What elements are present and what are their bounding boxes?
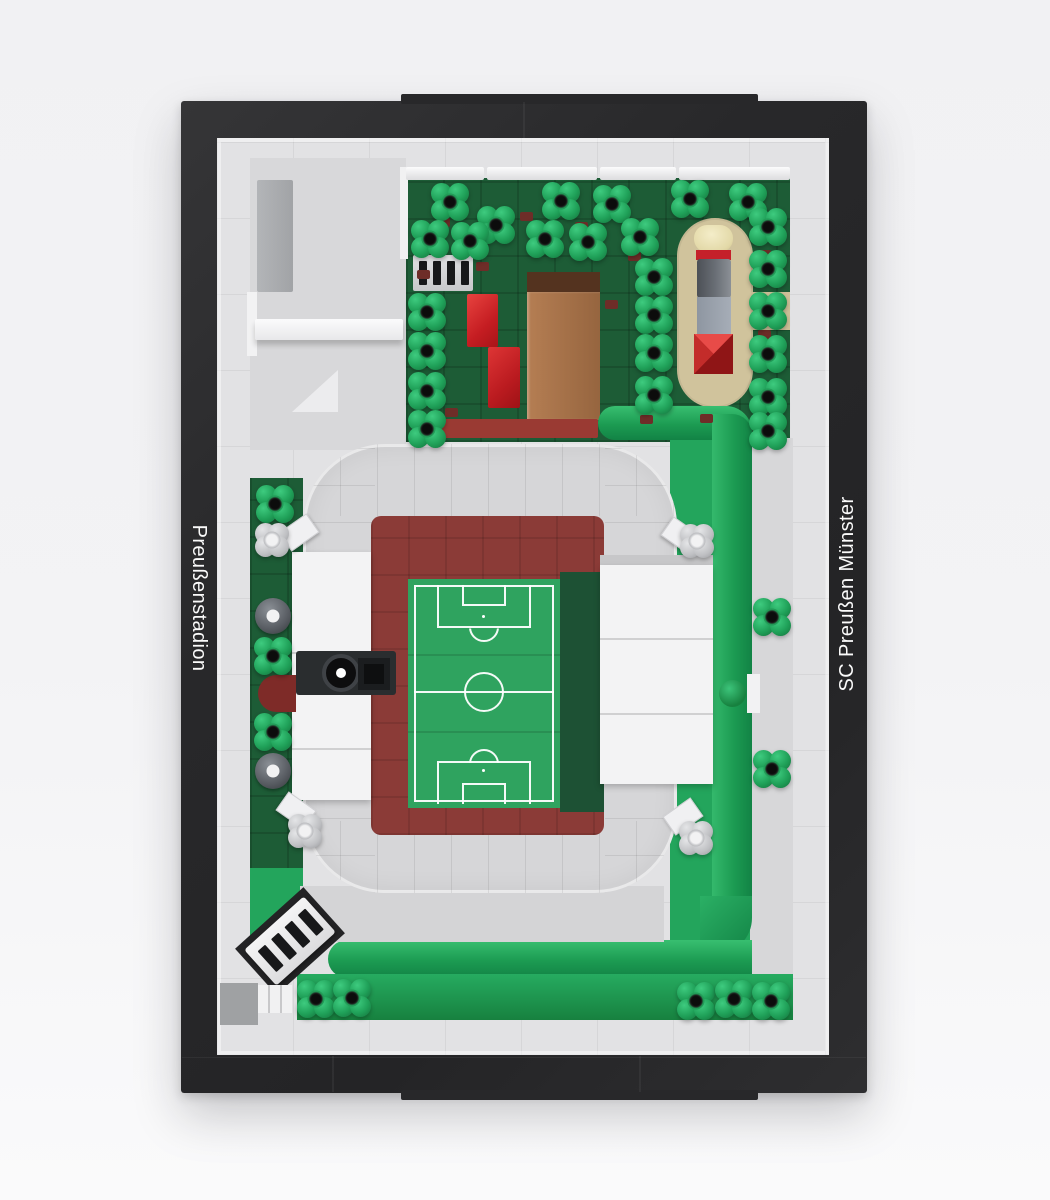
- floodlight-flower: [679, 821, 713, 855]
- frame-label-left: Preußenstadion: [187, 478, 211, 718]
- flower-brick: [635, 334, 673, 372]
- flower-brick: [333, 979, 371, 1017]
- soil-fleck: [700, 414, 713, 423]
- flower-brick: [256, 485, 294, 523]
- flower-brick: [749, 335, 787, 373]
- soil-fleck: [476, 262, 489, 271]
- soil-fleck: [640, 415, 653, 424]
- barrel-brick: [255, 598, 291, 634]
- floodlight-flower: [680, 524, 714, 558]
- flower-brick: [753, 750, 791, 788]
- flower-brick: [635, 258, 673, 296]
- flower-brick: [408, 293, 446, 331]
- barrel-brick: [255, 753, 291, 789]
- flower-brick: [542, 182, 580, 220]
- flower-brick: [254, 637, 292, 675]
- flower-brick: [431, 183, 469, 221]
- flower-brick: [635, 296, 673, 334]
- flower-brick: [753, 598, 791, 636]
- flower-brick: [749, 250, 787, 288]
- soil-fleck: [445, 408, 458, 417]
- floodlight-flower: [288, 814, 322, 848]
- flower-brick: [635, 376, 673, 414]
- flower-brick: [408, 410, 446, 448]
- flower-brick: [621, 218, 659, 256]
- flower-brick: [569, 223, 607, 261]
- soil-fleck: [605, 300, 618, 309]
- product-photo: Preußenstadion SC Preußen Münster: [0, 0, 1050, 1200]
- soil-fleck: [417, 270, 430, 279]
- flower-brick: [749, 378, 787, 416]
- flower-brick: [749, 412, 787, 450]
- flower-brick: [715, 980, 753, 1018]
- decoration-layer: [0, 0, 1050, 1200]
- flower-brick: [526, 220, 564, 258]
- frame-label-right: SC Preußen Münster: [835, 464, 859, 724]
- flower-brick: [752, 982, 790, 1020]
- flower-brick: [451, 222, 489, 260]
- flower-brick: [408, 372, 446, 410]
- flower-brick: [677, 982, 715, 1020]
- flower-brick: [411, 220, 449, 258]
- flower-brick: [408, 332, 446, 370]
- flower-brick: [671, 180, 709, 218]
- flower-brick: [297, 980, 335, 1018]
- flower-brick: [254, 713, 292, 751]
- flower-brick: [749, 208, 787, 246]
- flower-brick: [749, 292, 787, 330]
- floodlight-flower: [255, 523, 289, 557]
